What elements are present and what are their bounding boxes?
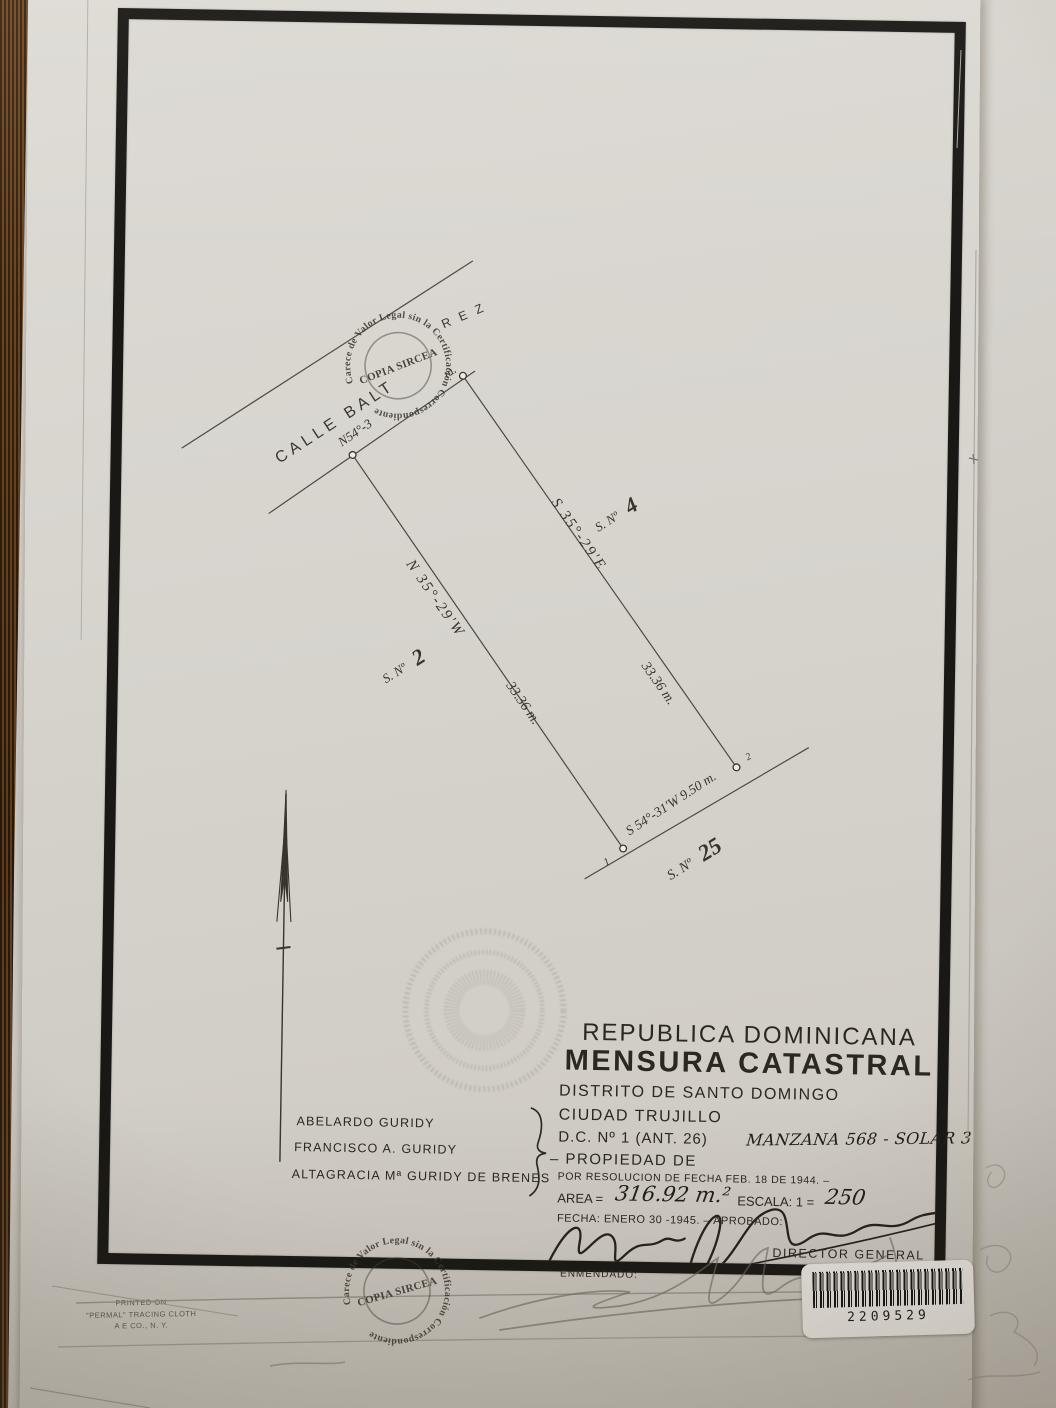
- barcode-sticker: 2209529: [801, 1260, 975, 1339]
- page-level-marks: [0, 0, 1056, 1408]
- stamp-center-text: COPIA SIRCEA: [356, 1275, 439, 1309]
- photographed-survey-document: CALLE BALT R E Z N54°-3 m. S 35°-29'E 33…: [0, 0, 1056, 1408]
- barcode-stripes: [812, 1268, 963, 1308]
- barcode-number: 2209529: [802, 1307, 974, 1327]
